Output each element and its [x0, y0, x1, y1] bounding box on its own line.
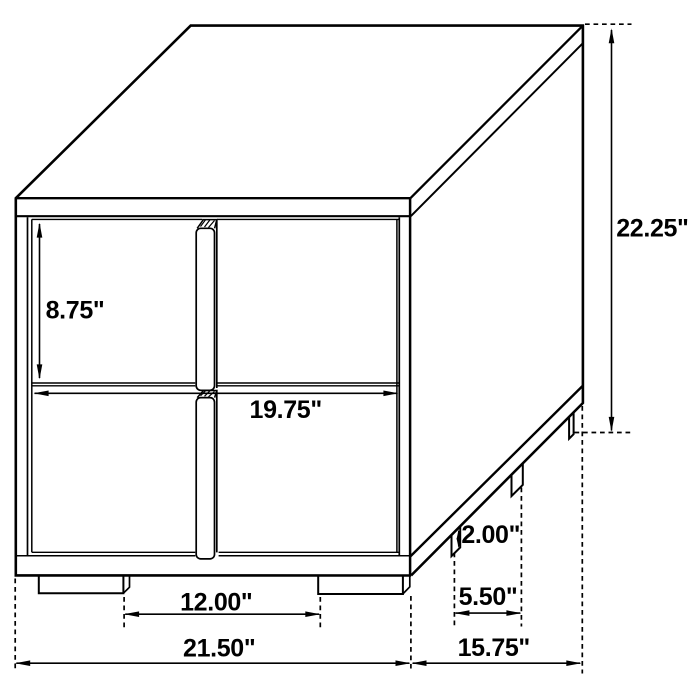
svg-text:19.75": 19.75" — [250, 396, 322, 424]
svg-text:12.00": 12.00" — [180, 589, 252, 617]
svg-text:5.50": 5.50" — [459, 583, 518, 611]
svg-text:21.50": 21.50" — [183, 634, 255, 662]
svg-text:22.25": 22.25" — [616, 214, 688, 242]
svg-text:8.75": 8.75" — [46, 297, 105, 325]
svg-text:2.00": 2.00" — [461, 521, 520, 549]
svg-text:15.75": 15.75" — [458, 634, 530, 662]
